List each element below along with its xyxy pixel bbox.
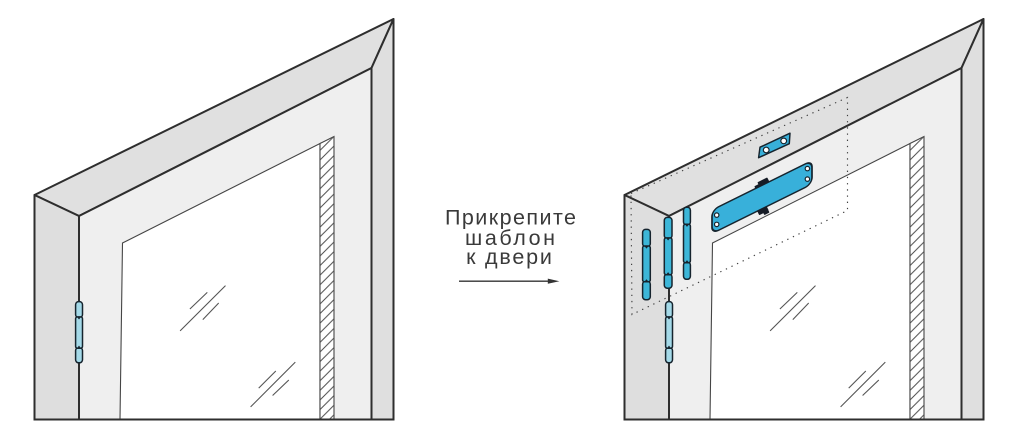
svg-text:к двери: к двери [466, 245, 554, 269]
